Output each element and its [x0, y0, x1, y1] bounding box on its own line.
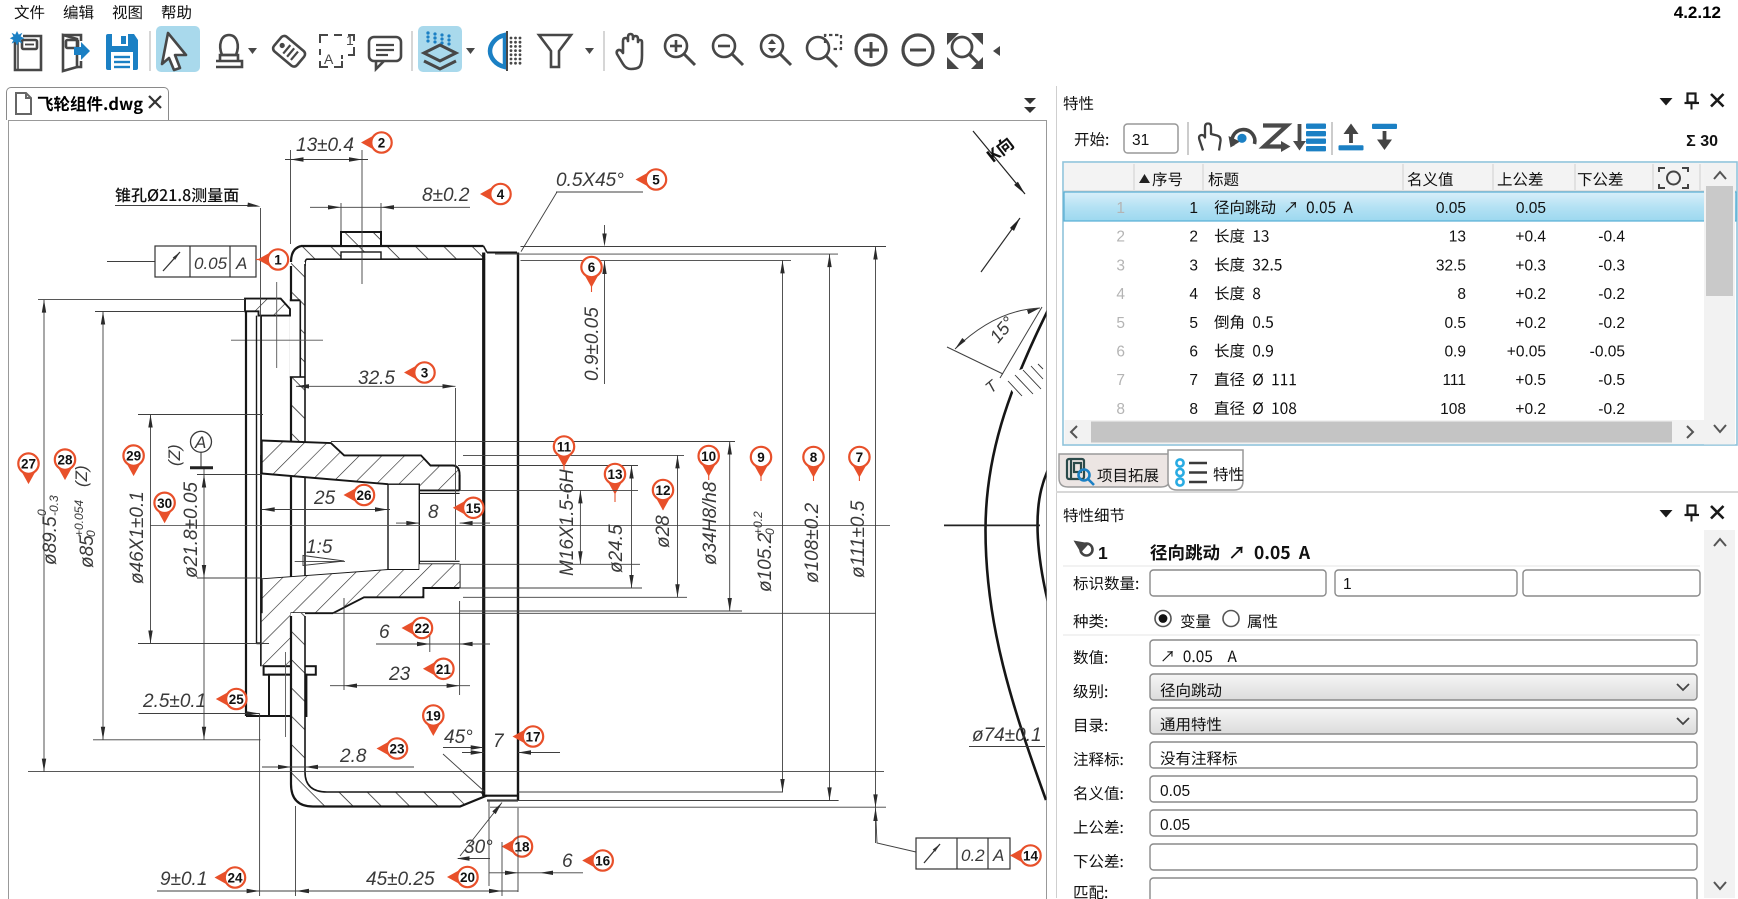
svg-text:ø111±0.5: ø111±0.5 [848, 500, 869, 578]
svg-text:13±0.4: 13±0.4 [296, 135, 354, 156]
svg-text:ø46X1±0.1: ø46X1±0.1 [127, 491, 148, 584]
svg-text:15°: 15° [986, 313, 1019, 347]
svg-text:2.5±0.1: 2.5±0.1 [142, 691, 206, 712]
svg-text:6: 6 [379, 622, 390, 643]
svg-text:0: 0 [84, 530, 98, 537]
svg-text:28: 28 [57, 453, 73, 468]
svg-text:10: 10 [701, 449, 716, 464]
svg-text:A: A [235, 254, 247, 273]
svg-text:M16X1.5-6H: M16X1.5-6H [557, 469, 578, 576]
svg-text:21: 21 [436, 662, 452, 677]
svg-text:2: 2 [378, 136, 386, 151]
svg-text:ø74±0.1: ø74±0.1 [972, 725, 1042, 746]
svg-text:22: 22 [414, 621, 429, 636]
svg-text:32.5: 32.5 [358, 368, 395, 389]
svg-text:24: 24 [227, 871, 243, 886]
svg-text:ø24.5: ø24.5 [606, 524, 627, 573]
svg-text:0: 0 [763, 528, 777, 535]
svg-text:ø85: ø85 [77, 535, 98, 568]
svg-text:15: 15 [466, 501, 482, 516]
svg-text:3: 3 [421, 366, 429, 381]
svg-text:(Z): (Z) [165, 444, 184, 466]
svg-text:0.9±0.05: 0.9±0.05 [582, 307, 603, 381]
svg-text:ø21.8±0.05: ø21.8±0.05 [181, 482, 202, 578]
svg-text:8: 8 [428, 502, 439, 523]
svg-text:45°: 45° [444, 727, 473, 748]
svg-text:7: 7 [856, 450, 864, 465]
svg-text:A: A [992, 846, 1004, 865]
svg-text:6: 6 [562, 851, 573, 872]
svg-text:ø34H8/h8: ø34H8/h8 [700, 481, 721, 565]
svg-text:19: 19 [426, 709, 441, 724]
svg-text:45±0.25: 45±0.25 [366, 869, 435, 890]
svg-text:0.5X45°: 0.5X45° [556, 170, 624, 191]
svg-text:ø105.2: ø105.2 [755, 532, 776, 592]
svg-text:13: 13 [607, 467, 623, 482]
svg-text:9: 9 [757, 450, 765, 465]
svg-text:17: 17 [525, 730, 540, 745]
svg-text:8: 8 [810, 450, 818, 465]
svg-text:6: 6 [588, 260, 596, 275]
svg-text:11: 11 [557, 440, 572, 455]
svg-text:(Z): (Z) [72, 465, 91, 487]
svg-text:1: 1 [274, 253, 282, 268]
svg-text:29: 29 [126, 449, 141, 464]
svg-text:ø108±0.2: ø108±0.2 [802, 502, 823, 583]
svg-text:18: 18 [514, 840, 530, 855]
svg-text:-0.3: -0.3 [47, 495, 61, 516]
svg-text:8±0.2: 8±0.2 [422, 185, 470, 206]
svg-text:ø28: ø28 [653, 515, 674, 548]
svg-text:20: 20 [460, 870, 475, 885]
svg-text:23: 23 [389, 742, 405, 757]
svg-text:9±0.1: 9±0.1 [160, 869, 207, 890]
svg-text:30: 30 [157, 496, 172, 511]
svg-text:ø89.5: ø89.5 [40, 516, 61, 565]
svg-text:26: 26 [356, 488, 372, 503]
svg-text:14: 14 [1023, 849, 1039, 864]
svg-text:A: A [194, 433, 206, 452]
svg-text:16: 16 [595, 854, 611, 869]
svg-text:1:5: 1:5 [306, 537, 333, 558]
svg-text:25: 25 [313, 488, 336, 509]
svg-text:0.2: 0.2 [961, 846, 985, 865]
svg-text:27: 27 [21, 457, 36, 472]
svg-text:5: 5 [652, 173, 660, 188]
svg-text:4: 4 [497, 187, 505, 202]
svg-text:T: T [983, 377, 1002, 397]
svg-text:7: 7 [493, 731, 505, 752]
svg-text:25: 25 [229, 692, 245, 707]
svg-text:0.05: 0.05 [194, 254, 228, 273]
svg-text:23: 23 [388, 664, 411, 685]
svg-text:12: 12 [655, 483, 670, 498]
svg-text:2.8: 2.8 [339, 746, 367, 767]
